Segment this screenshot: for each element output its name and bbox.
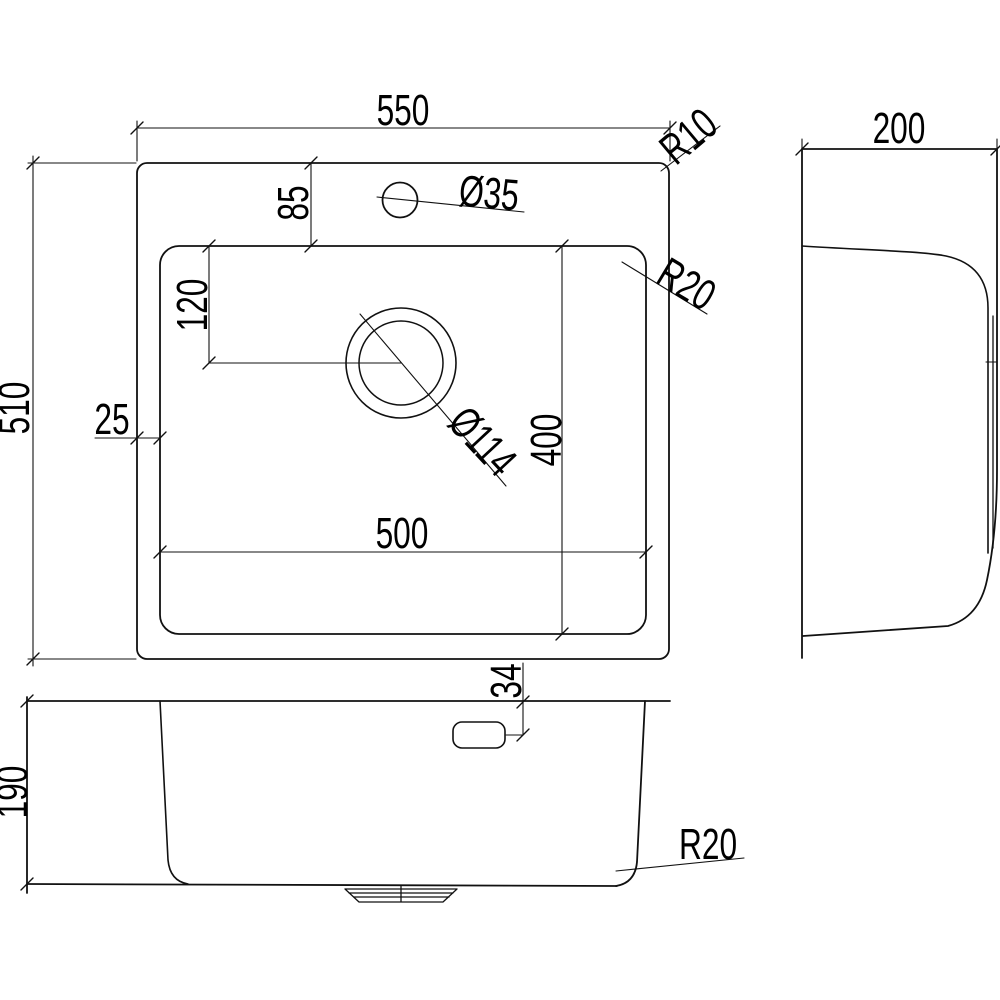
front-view-outline (27, 697, 670, 893)
dim-label-overall-depth: 510 (0, 382, 37, 435)
dim-label-drain-offset: 120 (171, 279, 215, 332)
drawing-linework (0, 0, 1000, 1000)
side-view-outline (802, 149, 997, 658)
dim-label-deck-to-bowl: 85 (272, 185, 316, 220)
side-bowl-profile (802, 246, 988, 553)
dim-label-bowl-width: 500 (376, 512, 429, 556)
front-dimension-ticks (21, 695, 529, 890)
faucet-hole (383, 183, 418, 218)
plan-outer-rim (137, 163, 669, 659)
plan-bowl-rim (160, 246, 646, 634)
front-left-bowl-wall (160, 701, 188, 884)
side-right-bottom-edge (803, 149, 997, 636)
front-drain-strainer (345, 886, 457, 902)
dim-label-front-height: 190 (0, 766, 35, 819)
dim-label-faucet-diameter: Ø35 (457, 169, 520, 218)
plan-view-outline (137, 163, 669, 659)
dim-label-overall-width: 550 (377, 89, 430, 133)
dim-label-edge-to-bowl: 25 (94, 398, 129, 442)
technical-drawing-canvas: 550 510 85 120 25 400 500 Ø35 Ø114 R10 R… (0, 0, 1000, 1000)
dim-label-bottom-radius: R20 (679, 823, 737, 867)
dim-label-side-width: 200 (873, 107, 926, 151)
plan-dimension-ticks (27, 122, 676, 665)
front-right-bowl-wall (616, 701, 645, 886)
overflow-hole (453, 722, 505, 748)
dim-label-bowl-depth: 400 (525, 414, 569, 467)
dim-label-overflow-offset: 34 (485, 663, 529, 698)
front-bottom-edge (27, 884, 617, 886)
plan-dimension-lines (28, 121, 720, 666)
